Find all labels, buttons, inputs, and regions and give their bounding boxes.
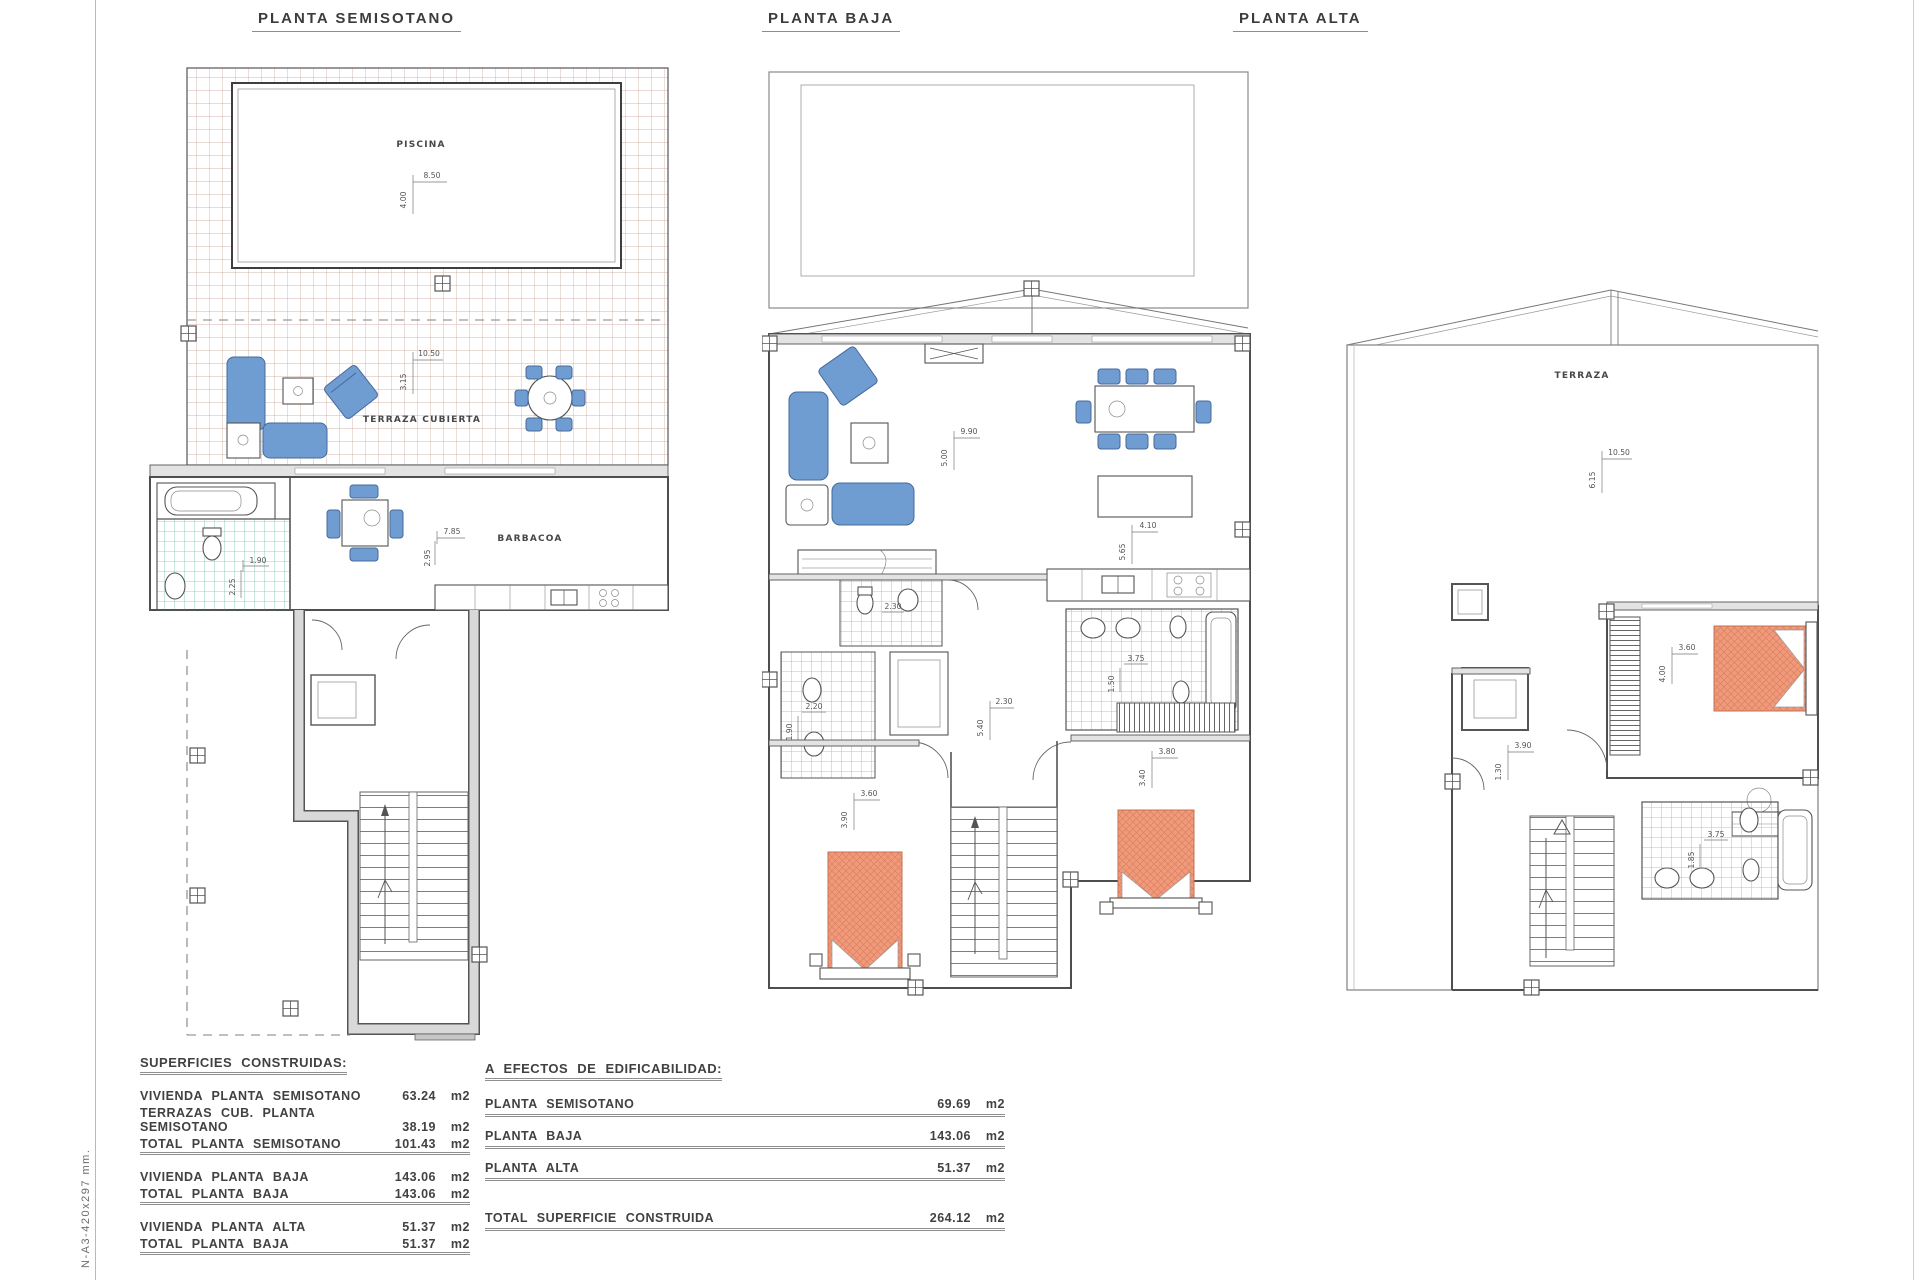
svg-text:3.75: 3.75 [1128, 654, 1145, 663]
interior-wall [769, 740, 919, 746]
title-planta-alta: PLANTA ALTA [1233, 10, 1368, 32]
skylight [1452, 584, 1488, 620]
staircase [1530, 816, 1614, 966]
interior-wall [769, 574, 1047, 580]
title-planta-baja: PLANTA BAJA [762, 10, 900, 32]
table-row: VIVIENDA PLANTA SEMISOTANO63.24m2 [140, 1087, 470, 1104]
bathroom-2: 2.20 1.90 [781, 652, 875, 778]
svg-text:2.30: 2.30 [885, 602, 902, 611]
kitchen-counter [1047, 569, 1250, 601]
column-marker [1063, 872, 1078, 887]
svg-text:9.90: 9.90 [961, 427, 978, 436]
sheet-border-right [1913, 0, 1914, 1280]
svg-text:5.65: 5.65 [1118, 543, 1127, 560]
drawing-sheet: N-A3-420x297 mm. PLANTA SEMISOTANO PLANT… [0, 0, 1920, 1280]
bathroom-1: 2.30 [840, 580, 942, 646]
bathroom: 3.75 1.85 [1642, 802, 1812, 899]
svg-text:3.90: 3.90 [840, 811, 849, 828]
table-row-grand-total: TOTAL SUPERFICIE CONSTRUIDA264.12m2 [485, 1207, 1005, 1231]
title-planta-semisotano: PLANTA SEMISOTANO [252, 10, 461, 32]
svg-text:10.50: 10.50 [418, 349, 440, 358]
svg-text:3.90: 3.90 [1515, 741, 1532, 750]
terrace-label: TERRAZA [1554, 371, 1609, 381]
column-marker [283, 1001, 298, 1016]
dim-terrace-depth: 6.15 [1588, 471, 1597, 488]
dim-pool-depth: 4.00 [399, 191, 408, 208]
column-marker [1803, 770, 1818, 785]
covered-terrace-label: TERRAZA CUBIERTA [363, 415, 481, 425]
svg-text:3.60: 3.60 [861, 789, 878, 798]
column-marker [1599, 604, 1614, 619]
floor-plan-alta: TERRAZA 10.50 6.15 3.60 4.00 [1262, 218, 1822, 1008]
column-marker [1445, 774, 1460, 789]
dim-terrace-width: 10.50 [1608, 448, 1630, 457]
table-row: PLANTA SEMISOTANO69.69m2 [485, 1093, 1005, 1117]
svg-text:1.30: 1.30 [1494, 763, 1503, 780]
built-areas-table: SUPERFICIES CONSTRUIDAS: VIVIENDA PLANTA… [140, 1055, 470, 1280]
svg-text:5.40: 5.40 [976, 719, 985, 736]
sheet-border-left [95, 0, 96, 1280]
built-areas-title: SUPERFICIES CONSTRUIDAS: [140, 1055, 347, 1075]
table-row: VIVIENDA PLANTA ALTA51.37m2 [140, 1218, 470, 1235]
edificability-title: A EFECTOS DE EDIFICABILIDAD: [485, 1061, 722, 1081]
table-row-total: TOTAL PLANTA SEMISOTANO101.43m2 [140, 1135, 470, 1155]
table-row-total: TOTAL PLANTA BAJA143.06m2 [140, 1185, 470, 1205]
column-marker [472, 947, 487, 962]
floor-plan-semisotano: PISCINA 8.50 4.00 TERRAZA CUBIERTA [145, 52, 675, 1042]
floor-plan-baja: 9.90 5.00 4.10 5.65 [762, 52, 1262, 1002]
basement-bathroom: 1.90 2.25 [157, 519, 290, 610]
basement-stair-structure [299, 610, 475, 1040]
upper-roof-outline [769, 72, 1248, 308]
column-marker [435, 276, 450, 291]
svg-text:3.15: 3.15 [399, 373, 408, 390]
pool: PISCINA 8.50 4.00 [232, 83, 621, 268]
column-marker [762, 336, 777, 351]
svg-text:1.50: 1.50 [1107, 675, 1116, 692]
kitchen-island [1098, 476, 1192, 517]
svg-text:2.95: 2.95 [423, 549, 432, 566]
column-marker [190, 888, 205, 903]
svg-text:5.00: 5.00 [940, 449, 949, 466]
svg-text:3.80: 3.80 [1159, 747, 1176, 756]
column-marker [762, 672, 777, 687]
table-row: TERRAZAS CUB. PLANTA SEMISOTANO38.19m2 [140, 1104, 470, 1135]
svg-text:2.20: 2.20 [806, 702, 823, 711]
svg-text:2.30: 2.30 [996, 697, 1013, 706]
svg-text:1.85: 1.85 [1687, 851, 1696, 868]
basement-kitchen-counter [435, 585, 668, 610]
interior-wall [1071, 735, 1250, 741]
svg-text:4.00: 4.00 [1658, 665, 1667, 682]
sheet-format-note: N-A3-420x297 mm. [80, 1149, 92, 1268]
edificability-table: A EFECTOS DE EDIFICABILIDAD: PLANTA SEMI… [485, 1061, 1005, 1239]
svg-text:1.90: 1.90 [785, 723, 794, 740]
barbecue-label: BARBACOA [497, 534, 562, 544]
table-row: PLANTA BAJA143.06m2 [485, 1125, 1005, 1149]
basement-building: 1.90 2.25 7.85 2.95 BARBACOA [150, 465, 668, 610]
svg-text:1.90: 1.90 [250, 556, 267, 565]
table-row: VIVIENDA PLANTA BAJA143.06m2 [140, 1168, 470, 1185]
column-marker [181, 326, 196, 341]
svg-text:4.10: 4.10 [1140, 521, 1157, 530]
gable-roof [1347, 290, 1818, 351]
svg-text:3.75: 3.75 [1708, 830, 1725, 839]
column-marker [1524, 980, 1539, 995]
column-marker [190, 748, 205, 763]
svg-text:3.60: 3.60 [1679, 643, 1696, 652]
column-marker [1235, 522, 1250, 537]
wardrobe [1610, 617, 1640, 755]
svg-text:2.25: 2.25 [228, 578, 237, 595]
dim-pool-width: 8.50 [424, 171, 441, 180]
table-row-total: TOTAL PLANTA BAJA51.37m2 [140, 1235, 470, 1255]
pool-label: PISCINA [396, 140, 445, 150]
svg-text:3.40: 3.40 [1138, 769, 1147, 786]
closet [890, 652, 948, 735]
svg-text:7.85: 7.85 [444, 527, 461, 536]
stair-lightwell-room [1462, 668, 1528, 730]
column-marker [908, 980, 923, 995]
table-row: PLANTA ALTA51.37m2 [485, 1157, 1005, 1181]
wardrobe [1117, 703, 1235, 732]
column-marker [1235, 336, 1250, 351]
